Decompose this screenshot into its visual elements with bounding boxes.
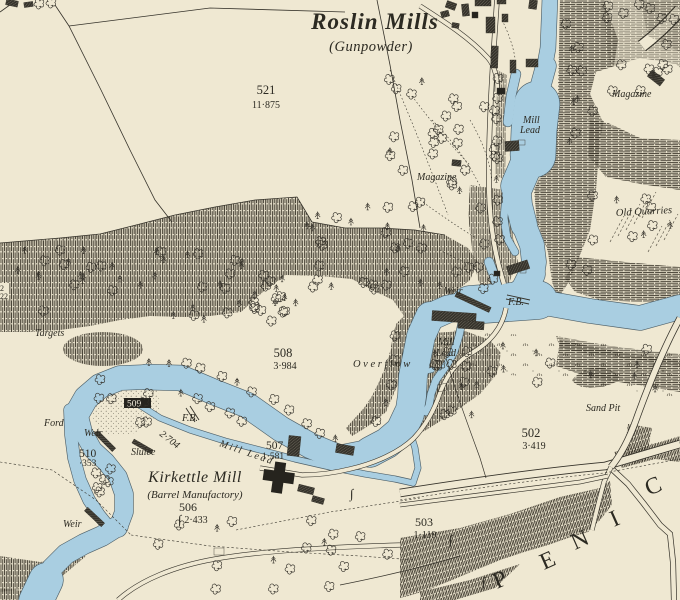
svg-text:1·581: 1·581 bbox=[262, 452, 284, 462]
svg-text:F.B.: F.B. bbox=[181, 413, 198, 424]
svg-text:Targets: Targets bbox=[35, 328, 64, 339]
svg-text:1·119: 1·119 bbox=[414, 530, 437, 541]
svg-text:507: 507 bbox=[266, 440, 284, 452]
svg-text:Weir: Weir bbox=[444, 286, 463, 297]
svg-text:Roslin Mills: Roslin Mills bbox=[310, 9, 439, 34]
svg-text:503: 503 bbox=[415, 515, 433, 529]
svg-text:508: 508 bbox=[274, 346, 293, 360]
svg-text:502: 502 bbox=[522, 426, 541, 440]
svg-text:3·984: 3·984 bbox=[273, 361, 296, 372]
svg-text:(Gunpowder): (Gunpowder) bbox=[329, 39, 413, 55]
svg-text:Weir: Weir bbox=[63, 519, 82, 530]
svg-text:Lead: Lead bbox=[519, 125, 541, 136]
svg-text:Magazine: Magazine bbox=[416, 172, 457, 183]
svg-text:2·433: 2·433 bbox=[184, 515, 207, 526]
svg-text:22: 22 bbox=[0, 292, 8, 301]
svg-text:Magazine: Magazine bbox=[611, 89, 652, 100]
svg-text:Sluice: Sluice bbox=[131, 447, 156, 458]
svg-text:Overflow: Overflow bbox=[353, 359, 413, 370]
svg-text:·353: ·353 bbox=[79, 459, 97, 469]
svg-text:11·875: 11·875 bbox=[252, 100, 280, 111]
svg-text:F.B.: F.B. bbox=[507, 297, 524, 308]
svg-text:Weir: Weir bbox=[84, 428, 103, 439]
svg-text:Mill: Mill bbox=[437, 337, 455, 348]
svg-text:521: 521 bbox=[257, 83, 276, 97]
svg-text:506: 506 bbox=[179, 500, 197, 514]
svg-text:Kirkettle Mill: Kirkettle Mill bbox=[147, 469, 242, 486]
svg-text:Lead: Lead bbox=[435, 348, 457, 359]
svg-text:Sand Pit: Sand Pit bbox=[586, 403, 620, 414]
svg-text:Ford: Ford bbox=[43, 418, 65, 429]
svg-text:3·419: 3·419 bbox=[522, 441, 545, 452]
